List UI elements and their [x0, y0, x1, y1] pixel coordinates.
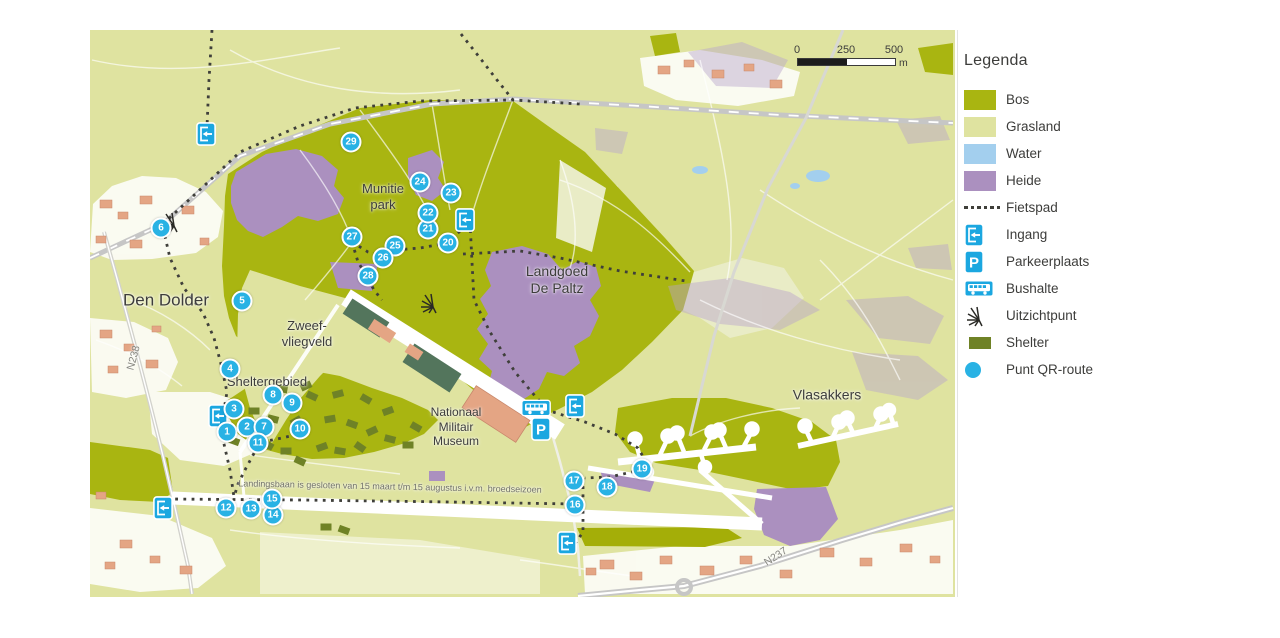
qr-point-22[interactable]: 22	[418, 203, 439, 224]
qr-point-26[interactable]: 26	[373, 248, 394, 269]
qr-point-10[interactable]: 10	[290, 419, 311, 440]
ingang-icon	[565, 394, 585, 418]
map-label-munitiepark: Munitiepark	[362, 181, 404, 213]
ingang-icon	[153, 496, 173, 520]
qr-point-16[interactable]: 16	[565, 495, 586, 516]
legend-item-uitzichtpunt: Uitzichtpunt	[964, 302, 1264, 329]
ingang-marker[interactable]	[196, 122, 216, 146]
map-label-nationaal-militair-museum: NationaalMilitairMuseum	[431, 405, 482, 449]
legend-item-bos: Bos	[964, 86, 1264, 113]
map-label-den-dolder: Den Dolder	[123, 291, 209, 312]
map-label-vlasakkers: Vlasakkers	[793, 386, 861, 403]
qr-point-8[interactable]: 8	[263, 385, 284, 406]
legend-item-bushalte: Bushalte	[964, 275, 1264, 302]
ingang-icon	[455, 208, 475, 232]
legend-label-water: Water	[1006, 146, 1042, 161]
legend-label-bos: Bos	[1006, 92, 1029, 107]
bushalte-icon	[521, 400, 551, 417]
qr-point-29[interactable]: 29	[341, 132, 362, 153]
legend-item-grasland: Grasland	[964, 113, 1264, 140]
scale-tick: 0	[794, 44, 800, 56]
svg-text:P: P	[536, 422, 546, 439]
uitzichtpunt-icon	[964, 305, 986, 327]
map-page: 0 250 500 m Den DolderN238Zweef-vliegvel…	[0, 0, 1280, 638]
qr-point-icon	[964, 361, 998, 379]
qr-point-18[interactable]: 18	[597, 477, 618, 498]
ingang-marker[interactable]	[153, 496, 173, 520]
legend-item-water: Water	[964, 140, 1264, 167]
legend-item-heide: Heide	[964, 167, 1264, 194]
parkeerplaats-icon: P	[964, 250, 984, 274]
parkeerplaats-marker[interactable]: P	[531, 417, 551, 441]
ingang-marker[interactable]	[565, 394, 585, 418]
qr-point-15[interactable]: 15	[262, 489, 283, 510]
bushalte-icon	[964, 280, 998, 297]
qr-point-icon	[964, 361, 982, 379]
legend-item-ingang: Ingang	[964, 221, 1264, 248]
scale-unit: m	[899, 57, 908, 69]
qr-point-28[interactable]: 28	[358, 266, 379, 287]
qr-point-9[interactable]: 9	[282, 393, 303, 414]
legend-label-ingang: Ingang	[1006, 227, 1047, 242]
qr-point-19[interactable]: 19	[632, 459, 653, 480]
scale-bar: 0 250 500 m	[797, 44, 917, 66]
ingang-icon	[557, 531, 577, 555]
qr-point-24[interactable]: 24	[410, 172, 431, 193]
legend-label-shelter: Shelter	[1006, 335, 1049, 350]
legend-label-bushalte: Bushalte	[1006, 281, 1059, 296]
legend-item-parkeerplaats: PParkeerplaats	[964, 248, 1264, 275]
qr-point-3[interactable]: 3	[224, 399, 245, 420]
legend-label-fietspad: Fietspad	[1006, 200, 1058, 215]
legend-title: Legenda	[964, 52, 1264, 70]
qr-point-12[interactable]: 12	[216, 498, 237, 519]
bushalte-marker[interactable]	[521, 400, 551, 417]
uitzichtpunt-icon	[418, 292, 440, 314]
uitzichtpunt-icon	[964, 305, 998, 327]
water-swatch	[964, 144, 998, 164]
parkeerplaats-icon: P	[964, 250, 998, 274]
qr-point-1[interactable]: 1	[217, 422, 238, 443]
qr-point-23[interactable]: 23	[441, 183, 462, 204]
legend-label-parkeerplaats: Parkeerplaats	[1006, 254, 1089, 269]
scale-bar-rule	[797, 58, 896, 66]
map-label-landgoed-de-paltz: LandgoedDe Paltz	[526, 263, 588, 297]
legend-divider	[957, 30, 958, 597]
legend-label-punt-qr-route: Punt QR-route	[1006, 362, 1093, 377]
map-label-zweefvliegveld: Zweef-vliegveld	[282, 318, 333, 350]
shelter-swatch	[964, 337, 998, 349]
scale-tick: 250	[837, 44, 855, 56]
ingang-icon	[196, 122, 216, 146]
fietspad-dots-icon	[964, 206, 998, 210]
parkeerplaats-icon: P	[531, 417, 551, 441]
legend-label-heide: Heide	[1006, 173, 1041, 188]
ingang-marker[interactable]	[455, 208, 475, 232]
grasland-swatch	[964, 117, 998, 137]
qr-point-6[interactable]: 6	[151, 218, 172, 239]
qr-point-20[interactable]: 20	[438, 233, 459, 254]
uitzichtpunt-marker[interactable]	[418, 292, 440, 314]
legend-item-punt-qr-route: Punt QR-route	[964, 356, 1264, 383]
ingang-marker[interactable]	[557, 531, 577, 555]
qr-point-17[interactable]: 17	[564, 471, 585, 492]
legend-label-grasland: Grasland	[1006, 119, 1061, 134]
qr-point-27[interactable]: 27	[342, 227, 363, 248]
qr-point-13[interactable]: 13	[241, 499, 262, 520]
ingang-icon	[964, 223, 984, 247]
svg-text:P: P	[969, 254, 979, 271]
legend-panel: Legenda BosGraslandWaterHeideFietspad In…	[964, 52, 1264, 383]
legend-label-uitzichtpunt: Uitzichtpunt	[1006, 308, 1077, 323]
heide-swatch	[964, 171, 998, 191]
qr-point-4[interactable]: 4	[220, 359, 241, 380]
ingang-icon	[964, 223, 998, 247]
scale-tick: 500	[885, 44, 903, 56]
legend-item-fietspad: Fietspad	[964, 194, 1264, 221]
qr-point-11[interactable]: 11	[248, 433, 269, 454]
bushalte-icon	[964, 280, 994, 297]
legend-item-shelter: Shelter	[964, 329, 1264, 356]
qr-point-5[interactable]: 5	[232, 291, 253, 312]
bos-swatch	[964, 90, 998, 110]
